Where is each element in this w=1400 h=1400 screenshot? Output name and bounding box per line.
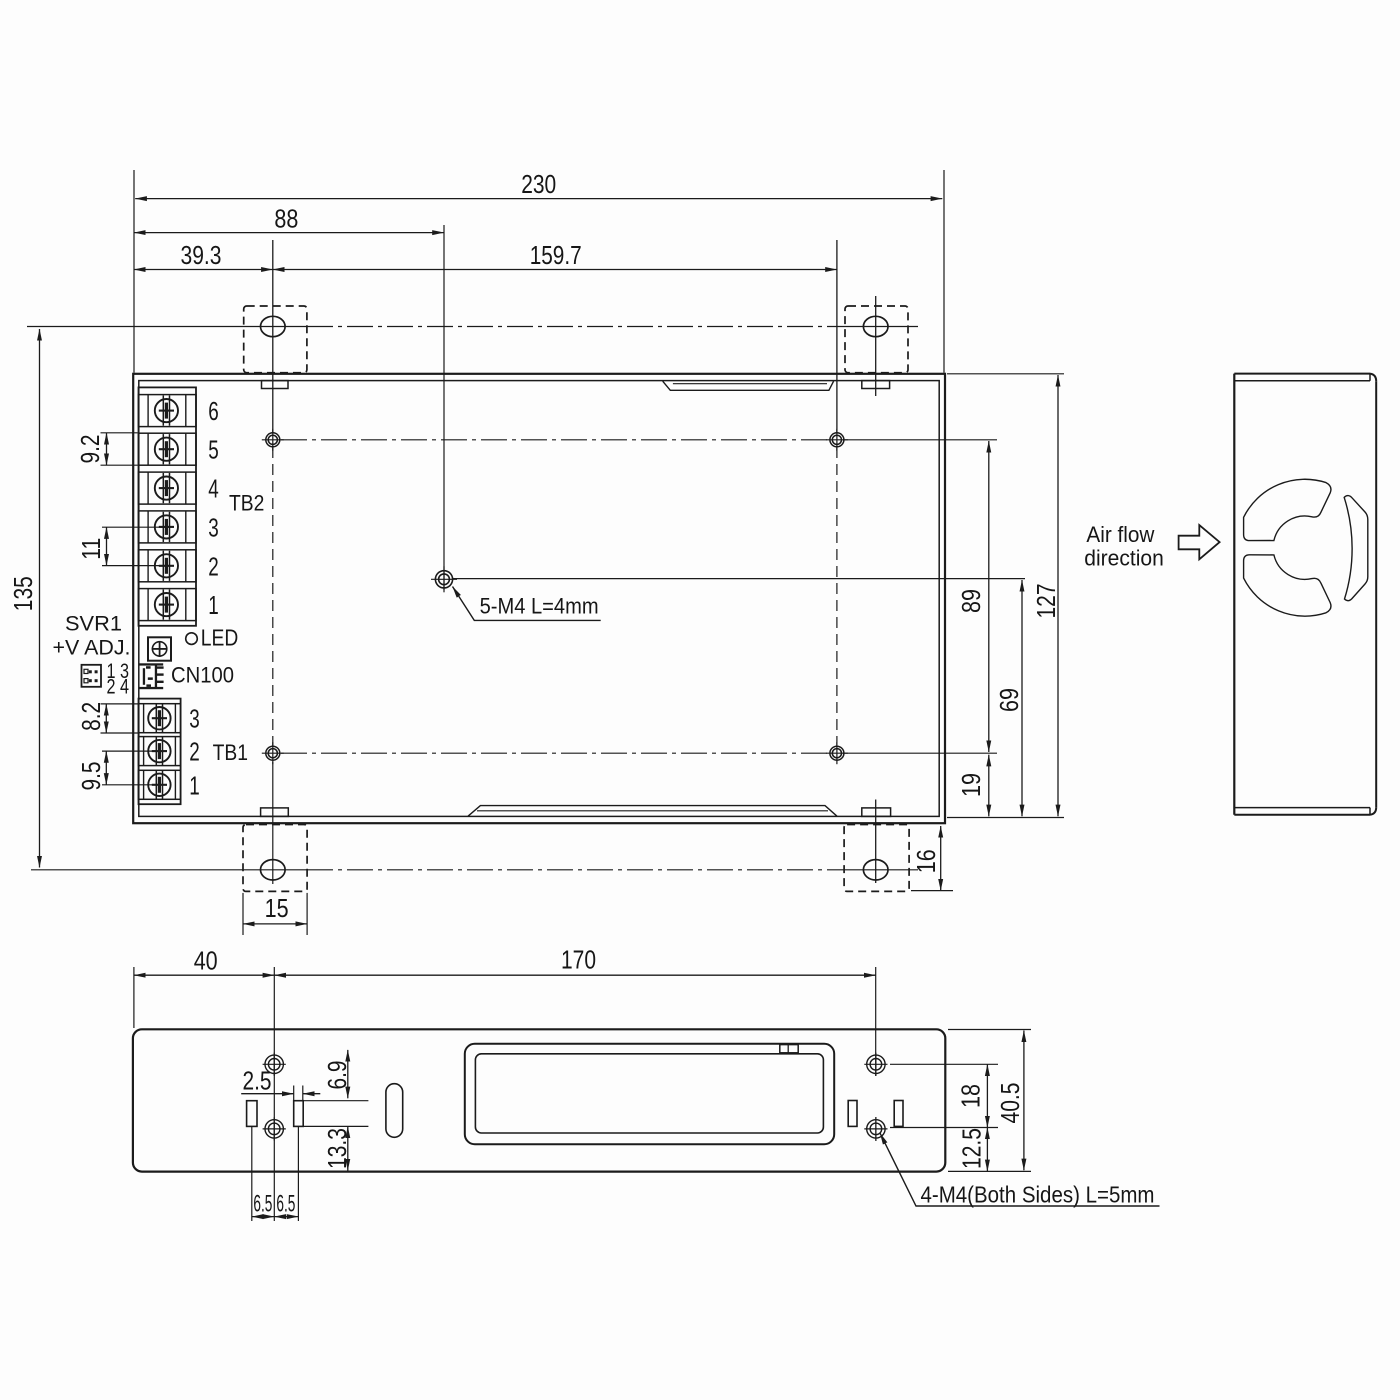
svg-text:39.3: 39.3 <box>181 242 222 270</box>
svg-text:2: 2 <box>189 739 200 767</box>
svg-text:1: 1 <box>208 592 219 620</box>
svg-text:127: 127 <box>1033 584 1061 619</box>
svg-text:6.9: 6.9 <box>324 1061 352 1090</box>
svg-text:89: 89 <box>958 589 986 613</box>
svg-text:8.2: 8.2 <box>78 702 106 731</box>
svg-text:170: 170 <box>561 947 596 975</box>
svg-text:135: 135 <box>10 576 38 611</box>
svg-text:12.5: 12.5 <box>959 1128 987 1169</box>
svg-text:direction: direction <box>1084 546 1164 571</box>
svg-text:230: 230 <box>521 171 556 199</box>
svg-text:11: 11 <box>78 538 106 560</box>
svg-text:6.5: 6.5 <box>253 1191 272 1218</box>
svg-text:Air flow: Air flow <box>1086 522 1154 547</box>
svg-text:6: 6 <box>208 398 219 426</box>
svg-text:40: 40 <box>194 948 218 976</box>
svg-text:15: 15 <box>265 895 289 923</box>
svg-text:69: 69 <box>996 688 1024 712</box>
svg-text:159.7: 159.7 <box>530 242 582 270</box>
svg-text:TB1: TB1 <box>213 740 248 765</box>
svg-text:40.5: 40.5 <box>997 1083 1025 1124</box>
svg-text:19: 19 <box>958 773 986 797</box>
svg-text:13.3: 13.3 <box>324 1128 352 1169</box>
svg-text:2: 2 <box>208 553 219 581</box>
svg-text:9.5: 9.5 <box>78 762 106 791</box>
svg-text:5-M4 L=4mm: 5-M4 L=4mm <box>480 594 599 619</box>
svg-text:3: 3 <box>208 514 219 542</box>
svg-text:+V ADJ.: +V ADJ. <box>53 636 131 660</box>
svg-text:4: 4 <box>208 476 219 504</box>
svg-text:CN100: CN100 <box>171 663 234 688</box>
svg-text:9.2: 9.2 <box>77 435 105 464</box>
svg-text:18: 18 <box>958 1084 986 1108</box>
svg-text:SVR1: SVR1 <box>65 612 122 636</box>
svg-text:2 4: 2 4 <box>107 675 130 699</box>
svg-text:2.5: 2.5 <box>243 1068 272 1096</box>
svg-text:LED: LED <box>201 625 239 651</box>
svg-text:4-M4(Both Sides) L=5mm: 4-M4(Both Sides) L=5mm <box>921 1182 1155 1208</box>
svg-text:16: 16 <box>913 849 941 873</box>
svg-text:3: 3 <box>189 706 200 734</box>
svg-text:6.5: 6.5 <box>276 1191 295 1218</box>
svg-text:TB2: TB2 <box>229 491 264 516</box>
svg-text:5: 5 <box>208 437 219 465</box>
svg-text:1: 1 <box>189 772 200 800</box>
svg-text:88: 88 <box>274 205 298 233</box>
